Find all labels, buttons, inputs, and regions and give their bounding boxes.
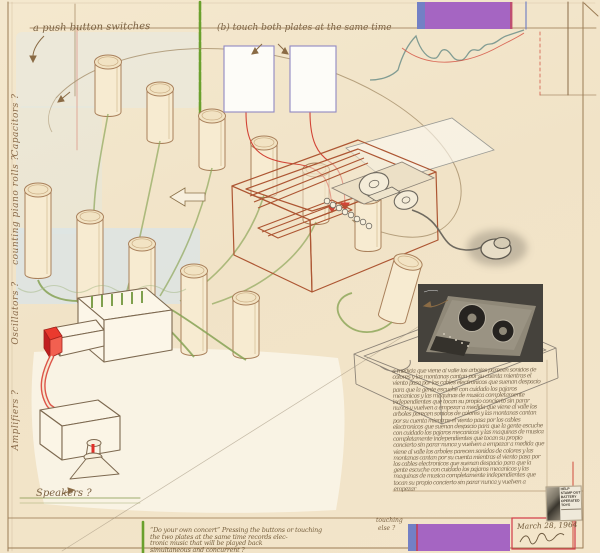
speakers-label: Speakers ? — [36, 488, 92, 499]
sticker-photo-fragment — [547, 487, 561, 520]
artist-signature — [520, 533, 564, 544]
touch-plates — [224, 44, 336, 112]
annotation-top-left: a push button switches — [33, 21, 150, 34]
blue-stripe-top — [417, 2, 425, 29]
toy-sticker: HELP STAMP OUT BATTERY OPERATED TOYS — [546, 486, 583, 522]
purple-bar-top — [425, 2, 512, 29]
annotation-top-middle: (b) touch both plates at the same time — [217, 23, 392, 33]
bottom-note-line: simultaneous and concurrent ? — [150, 547, 245, 553]
side-label-oscillators: Oscillators ? — [11, 281, 21, 344]
side-label-piano-rolls: counting piano rolls ? — [11, 155, 21, 265]
blue-stripe-bottom — [408, 524, 417, 551]
side-label-capacitors: Capacitors ? — [11, 94, 21, 157]
amplifier-box — [40, 400, 120, 460]
sticker-line: TOYS — [561, 503, 581, 507]
artwork-scan: a push button switches (b) touch both pl… — [0, 0, 600, 553]
sticker-footnote-rule — [561, 508, 581, 512]
purple-bar-bottom — [417, 524, 510, 551]
margin-note-line: else ? — [378, 526, 395, 533]
side-label-amplifiers: Amplifiers ? — [11, 390, 21, 451]
margin-note-line: touching — [376, 518, 403, 525]
dense-handwritten-paragraph: a medida que viene al valle los arboles … — [392, 367, 545, 510]
cloud-squiggle — [370, 30, 524, 80]
tape-recorder-photo — [418, 284, 543, 362]
